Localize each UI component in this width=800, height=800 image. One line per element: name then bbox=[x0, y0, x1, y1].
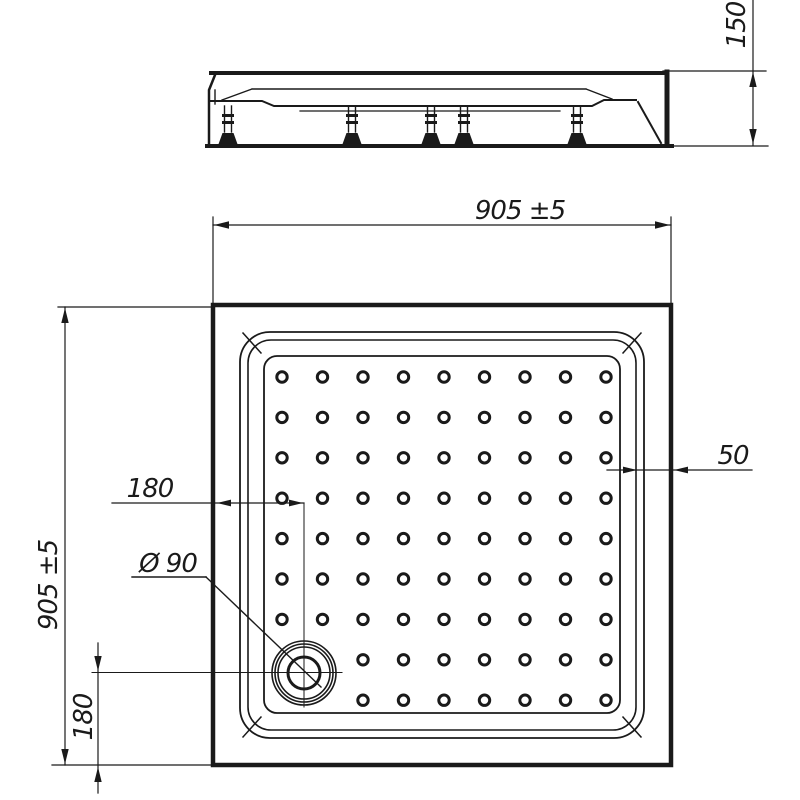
anti-slip-dot bbox=[398, 533, 408, 543]
arrowhead-down-icon bbox=[94, 656, 101, 671]
side-left-edge bbox=[209, 75, 215, 145]
anti-slip-dot bbox=[479, 453, 489, 463]
basin-underside-line bbox=[209, 100, 636, 106]
anti-slip-dot bbox=[398, 412, 408, 422]
anti-slip-dot bbox=[317, 453, 327, 463]
anti-slip-dot bbox=[358, 533, 368, 543]
anti-slip-dot bbox=[439, 574, 449, 584]
anti-slip-dot bbox=[479, 655, 489, 665]
anti-slip-dot bbox=[398, 372, 408, 382]
anti-slip-dot bbox=[277, 614, 287, 624]
adjustable-foot bbox=[342, 106, 362, 146]
anti-slip-dot bbox=[358, 574, 368, 584]
anti-slip-dot bbox=[479, 614, 489, 624]
anti-slip-dot bbox=[479, 574, 489, 584]
dim-label-drain-diameter: Ø 90 bbox=[138, 549, 197, 579]
dim-label-overall-width: 905 ±5 bbox=[475, 196, 566, 226]
anti-slip-dot bbox=[277, 493, 287, 503]
anti-slip-dot bbox=[520, 695, 530, 705]
anti-slip-dot bbox=[601, 372, 611, 382]
adjustable-foot bbox=[421, 106, 441, 146]
anti-slip-dot bbox=[439, 695, 449, 705]
anti-slip-dot bbox=[520, 412, 530, 422]
anti-slip-dot bbox=[317, 574, 327, 584]
drain bbox=[92, 503, 342, 707]
anti-slip-dot bbox=[439, 655, 449, 665]
anti-slip-dot bbox=[560, 533, 570, 543]
anti-slip-dot bbox=[601, 453, 611, 463]
anti-slip-dot bbox=[479, 412, 489, 422]
dim-label-drain-offset-left: 180 bbox=[127, 474, 174, 504]
anti-slip-dot bbox=[358, 614, 368, 624]
anti-slip-dot bbox=[601, 533, 611, 543]
arrowhead-left-icon bbox=[214, 221, 229, 228]
anti-slip-dot bbox=[560, 412, 570, 422]
anti-slip-dot bbox=[317, 533, 327, 543]
adjustable-feet-group bbox=[218, 106, 587, 146]
arrowhead-left-icon bbox=[674, 467, 688, 474]
dim-label-flange-width: 50 bbox=[717, 441, 749, 471]
leader-drain-diameter: Ø 90 bbox=[132, 549, 321, 687]
anti-slip-dot bbox=[560, 655, 570, 665]
anti-slip-dot bbox=[398, 695, 408, 705]
adjustable-foot bbox=[567, 106, 587, 146]
dim-flange-width: 50 bbox=[607, 441, 752, 473]
adjustable-foot bbox=[218, 106, 238, 146]
anti-slip-dot bbox=[520, 493, 530, 503]
dim-label-tray-height: 150 bbox=[722, 1, 752, 48]
anti-slip-dot bbox=[398, 493, 408, 503]
anti-slip-dot bbox=[560, 493, 570, 503]
anti-slip-dot bbox=[358, 493, 368, 503]
technical-drawing-svg: 905 ±5 150 905 ±5 180 180 50 bbox=[0, 0, 800, 800]
anti-slip-dot bbox=[439, 493, 449, 503]
dim-drain-offset-left: 180 bbox=[112, 474, 304, 506]
anti-slip-dot bbox=[358, 695, 368, 705]
anti-slip-dot bbox=[601, 614, 611, 624]
anti-slip-dot bbox=[277, 412, 287, 422]
anti-slip-dot bbox=[358, 372, 368, 382]
anti-slip-dot bbox=[520, 614, 530, 624]
anti-slip-dot bbox=[479, 695, 489, 705]
arrowhead-right-icon bbox=[655, 221, 670, 228]
dim-overall-width: 905 ±5 bbox=[213, 196, 671, 303]
arrowhead-left-icon bbox=[217, 500, 231, 507]
anti-slip-dot bbox=[398, 453, 408, 463]
anti-slip-dot bbox=[601, 574, 611, 584]
anti-slip-dot bbox=[560, 574, 570, 584]
anti-slip-dot bbox=[277, 453, 287, 463]
anti-slip-dot bbox=[601, 412, 611, 422]
anti-slip-dot bbox=[560, 614, 570, 624]
anti-slip-dot bbox=[439, 533, 449, 543]
dim-overall-depth: 905 ±5 bbox=[34, 307, 214, 765]
anti-slip-dot bbox=[317, 372, 327, 382]
anti-slip-dot bbox=[520, 372, 530, 382]
dim-tray-height: 150 bbox=[663, 0, 768, 146]
adjustable-foot bbox=[454, 106, 474, 146]
anti-slip-dot bbox=[277, 372, 287, 382]
anti-slip-dot bbox=[277, 574, 287, 584]
anti-slip-dot bbox=[520, 574, 530, 584]
anti-slip-dot bbox=[398, 574, 408, 584]
anti-slip-dot bbox=[479, 372, 489, 382]
basin-inner-line bbox=[222, 89, 612, 100]
anti-slip-dot bbox=[439, 412, 449, 422]
side-right-skirt-diagonal bbox=[638, 102, 661, 143]
anti-slip-dot bbox=[439, 614, 449, 624]
anti-slip-dot bbox=[560, 695, 570, 705]
anti-slip-dot bbox=[317, 412, 327, 422]
anti-slip-dot bbox=[398, 614, 408, 624]
dim-label-overall-depth: 905 ±5 bbox=[34, 539, 64, 630]
arrowhead-up-icon bbox=[61, 308, 68, 323]
anti-slip-dot bbox=[439, 453, 449, 463]
anti-slip-dot bbox=[560, 372, 570, 382]
arrowhead-down-icon bbox=[61, 749, 68, 764]
arrowhead-down-icon bbox=[749, 129, 756, 144]
arrowhead-up-icon bbox=[94, 767, 101, 782]
anti-slip-dot bbox=[520, 453, 530, 463]
anti-slip-dot bbox=[439, 372, 449, 382]
anti-slip-dot bbox=[398, 655, 408, 665]
arrowhead-right-icon bbox=[289, 500, 303, 507]
anti-slip-dot bbox=[479, 493, 489, 503]
anti-slip-dot bbox=[601, 695, 611, 705]
anti-slip-dot bbox=[358, 453, 368, 463]
anti-slip-dot bbox=[317, 493, 327, 503]
dim-drain-offset-bottom: 180 bbox=[69, 643, 102, 793]
anti-slip-dot bbox=[560, 453, 570, 463]
arrowhead-right-icon bbox=[623, 467, 637, 474]
arrowhead-up-icon bbox=[749, 72, 756, 87]
anti-slip-dot bbox=[317, 614, 327, 624]
anti-slip-dot bbox=[479, 533, 489, 543]
plan-view bbox=[92, 305, 671, 765]
side-elevation-view bbox=[207, 72, 672, 146]
anti-slip-dot bbox=[358, 412, 368, 422]
anti-slip-dot bbox=[601, 493, 611, 503]
anti-slip-dot bbox=[601, 655, 611, 665]
anti-slip-dot bbox=[277, 533, 287, 543]
dim-label-drain-offset-bottom: 180 bbox=[69, 693, 99, 740]
anti-slip-dot bbox=[520, 655, 530, 665]
drawing-sheet: 905 ±5 150 905 ±5 180 180 50 bbox=[0, 0, 800, 800]
anti-slip-dot bbox=[520, 533, 530, 543]
anti-slip-dot bbox=[358, 655, 368, 665]
